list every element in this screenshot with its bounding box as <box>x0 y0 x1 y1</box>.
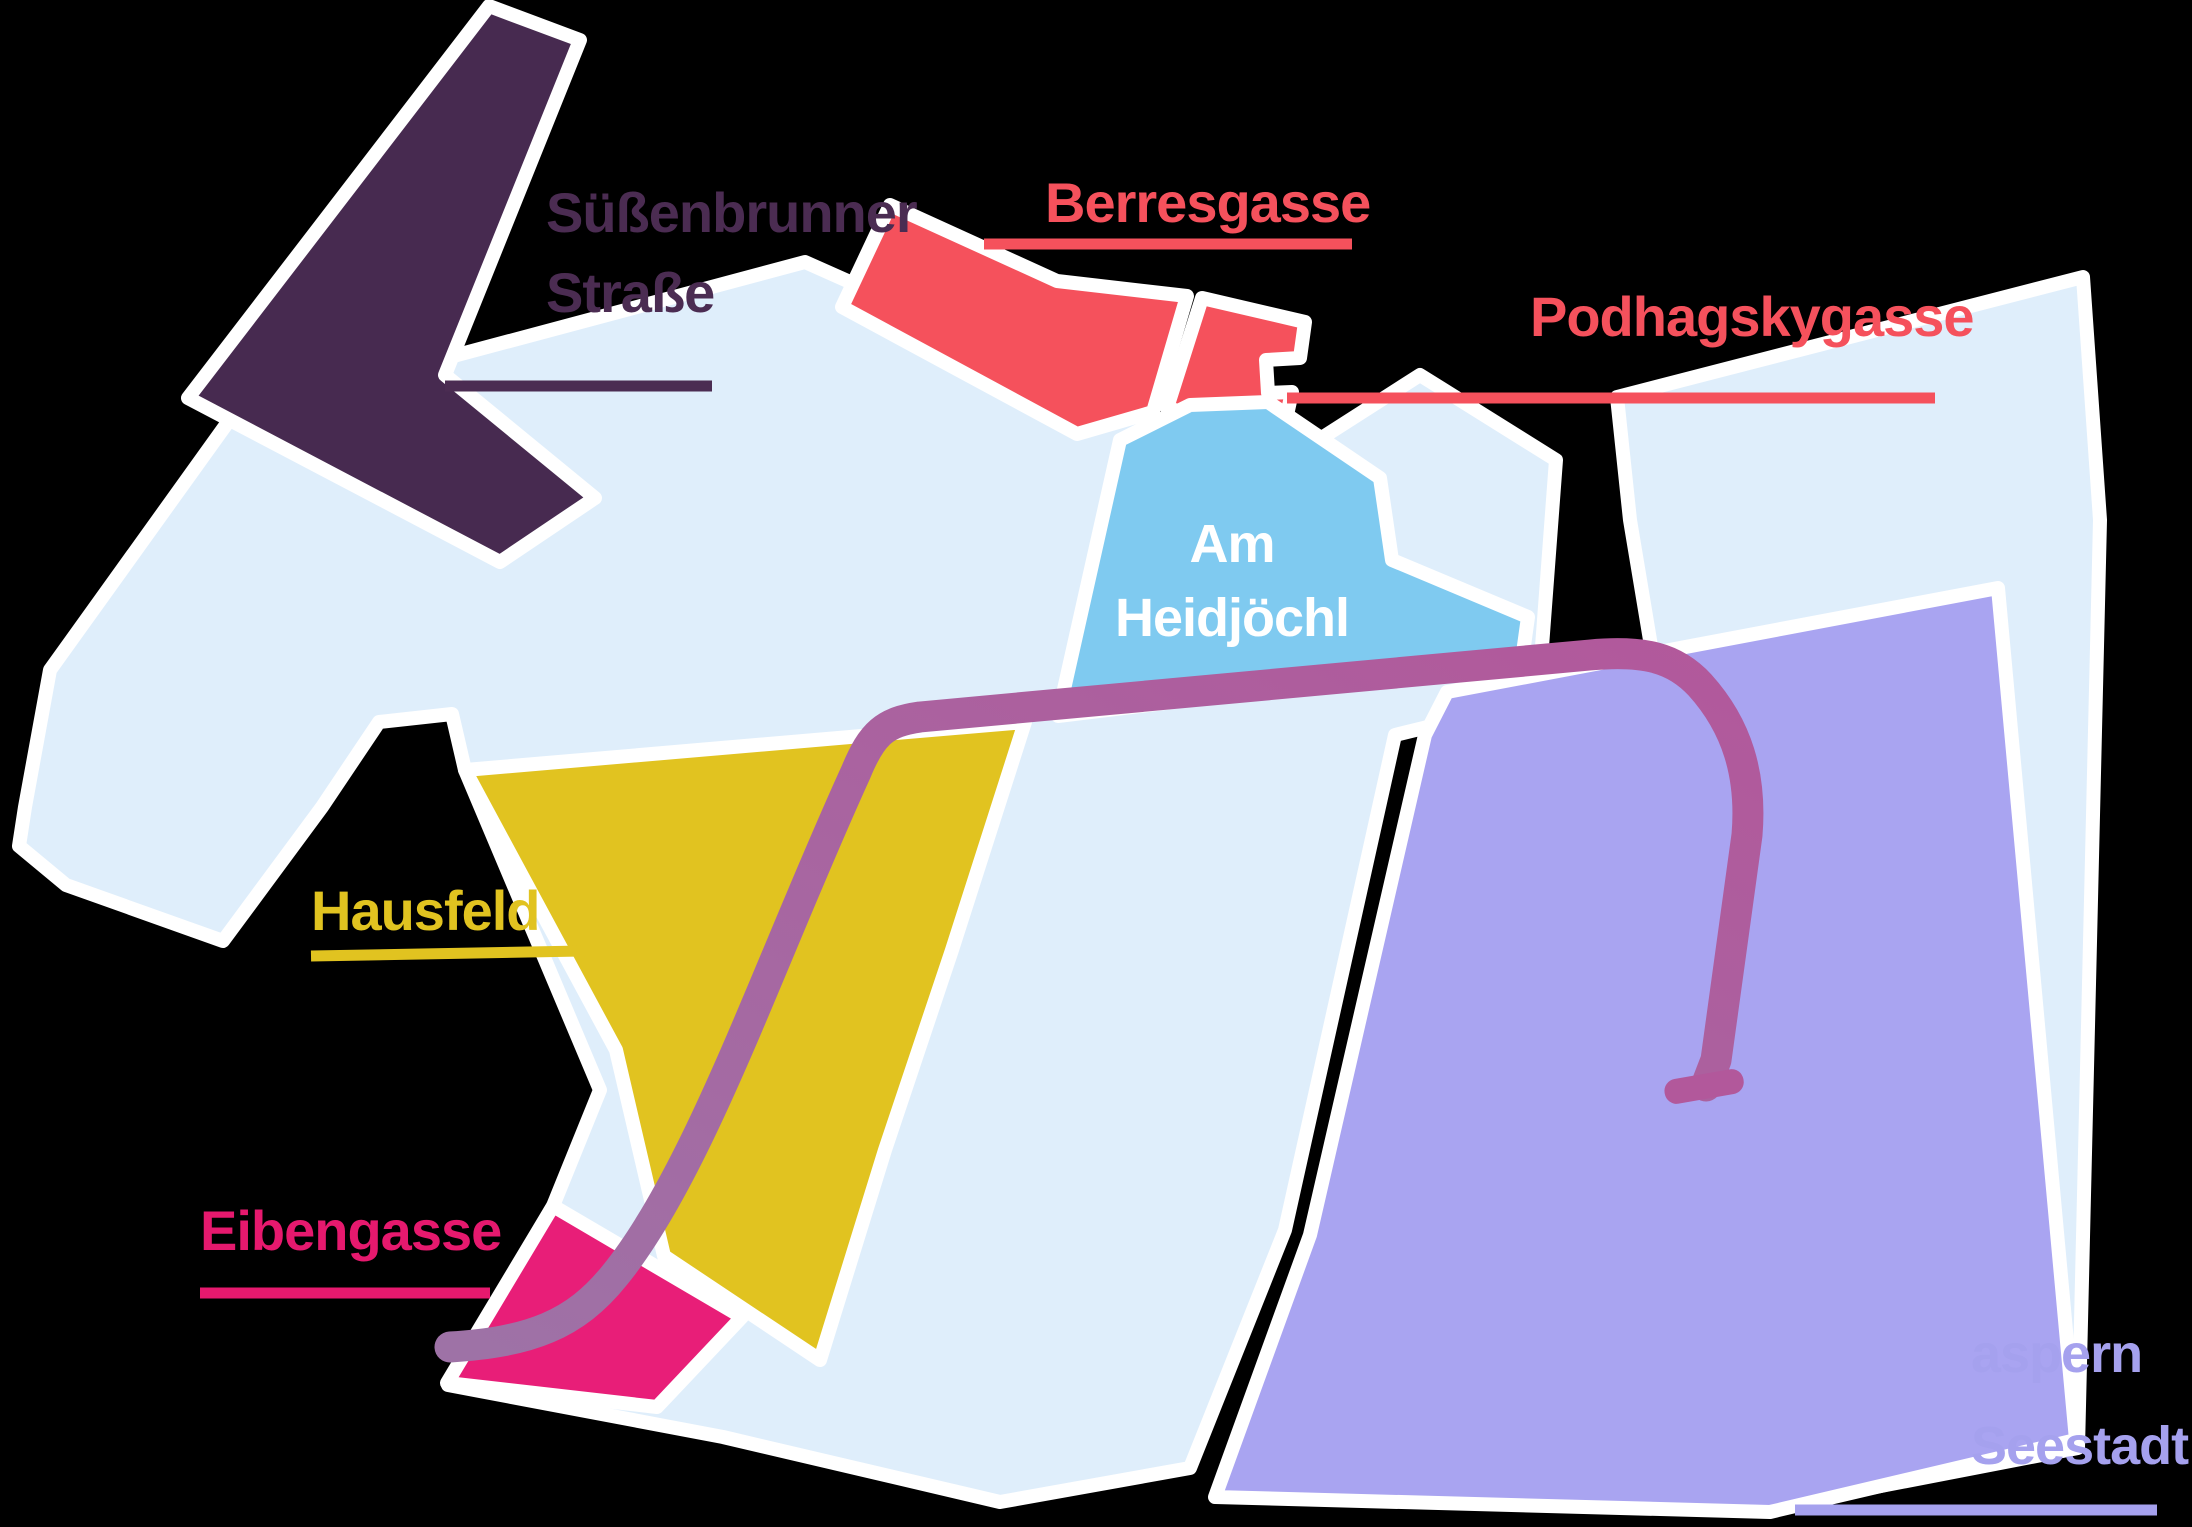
region-eibengasse-label: Eibengasse <box>200 1199 501 1262</box>
region-suessenbrunner-strasse-label-line2: Straße <box>546 261 714 324</box>
region-hausfeld-leader-line <box>311 950 636 956</box>
region-am-heidjoechl-label-line1: Am <box>1189 514 1274 574</box>
region-berresgasse-label: Berresgasse <box>1045 171 1370 234</box>
region-aspern-seestadt-label-line2: Seestadt <box>1971 1416 2189 1476</box>
region-suessenbrunner-strasse-label-line1: Süßenbrunner <box>546 181 917 244</box>
map-canvas: Süßenbrunner Straße Berresgasse Podhagsk… <box>0 0 2192 1527</box>
region-aspern-seestadt-label-line1: aspern <box>1971 1324 2142 1384</box>
region-podhagskygasse-label: Podhagskygasse <box>1530 285 1974 348</box>
region-am-heidjoechl-label-line2: Heidjöchl <box>1115 588 1349 648</box>
region-hausfeld-label: Hausfeld <box>311 879 540 942</box>
